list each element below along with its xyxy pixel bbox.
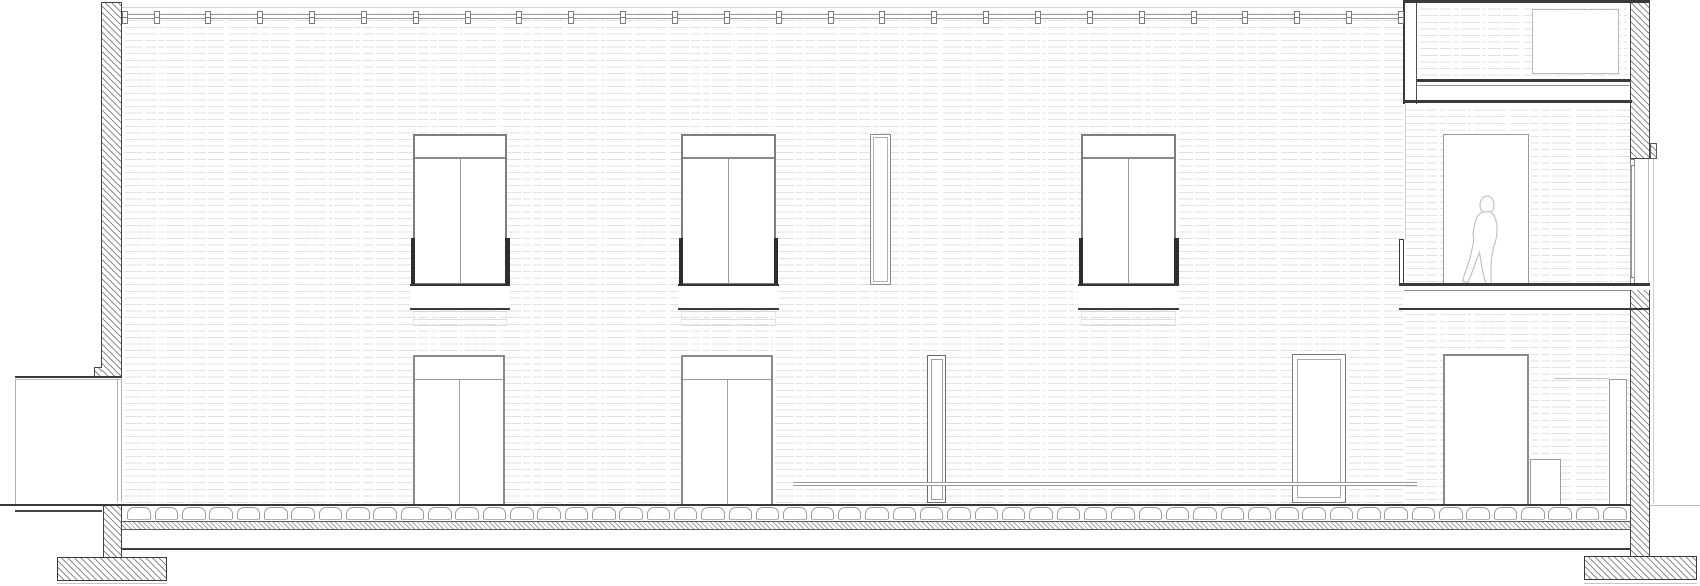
person-body: [1463, 211, 1498, 284]
cabinet-box: [1530, 459, 1561, 505]
wall-face-line-a: [117, 379, 118, 502]
floor-paver: [264, 507, 288, 520]
right-glazing-frame-top: [1630, 159, 1636, 166]
floor-paver: [1057, 507, 1081, 520]
floor-paver: [565, 507, 589, 520]
handrail-line: [793, 482, 1417, 487]
floor-paver: [401, 507, 425, 520]
terrace-parapet: [1399, 239, 1404, 286]
floor-paver: [756, 507, 780, 520]
window-mullion: [728, 159, 729, 284]
right-footing: [1584, 556, 1698, 580]
guardrail-post-right: [505, 238, 510, 285]
floor-paver: [975, 507, 999, 520]
floor-paver: [1166, 507, 1190, 520]
rail-clip: [828, 11, 834, 24]
rail-clip: [672, 11, 678, 24]
slit-window-inner-frame: [873, 137, 888, 282]
floor-paver: [592, 507, 616, 520]
floor-paver: [182, 507, 206, 520]
rail-clip: [620, 11, 626, 24]
sill-reflection: [413, 311, 507, 327]
floor-paver: [674, 507, 698, 520]
floor-paver: [428, 507, 452, 520]
roof-deck-bottom-line: [1403, 100, 1632, 103]
floor-paver: [647, 507, 671, 520]
floor-paver: [483, 507, 507, 520]
guardrail-post-left: [411, 238, 416, 285]
right-wall-ledge: [1650, 143, 1657, 159]
rail-clip: [1242, 11, 1248, 24]
floor-paver: [1330, 507, 1354, 520]
lower-door-right: [1443, 354, 1529, 505]
rail-clip: [1191, 11, 1197, 24]
left-wall-stem: [103, 506, 122, 557]
annex-canopy-line: [15, 376, 122, 379]
rail-clip: [309, 11, 315, 24]
floor-paver: [373, 507, 397, 520]
rail-clip: [465, 11, 471, 24]
floor-paver: [1439, 507, 1463, 520]
glazed-slot-inner-frame: [931, 359, 943, 500]
floor-paver: [783, 507, 807, 520]
rail-clip: [931, 11, 937, 24]
terrace-door: [1443, 134, 1529, 286]
floor-paver: [155, 507, 179, 520]
rail-clip: [154, 11, 160, 24]
floor-paver: [1412, 507, 1436, 520]
guardrail-post-right: [1174, 238, 1179, 285]
guardrail-post-right: [774, 238, 779, 285]
roof-top-line: [1403, 0, 1650, 3]
rail-clip: [568, 11, 574, 24]
right-glazing-mullion-a: [1630, 159, 1632, 284]
rail-clip: [122, 11, 128, 24]
wall-face-line-b: [121, 379, 122, 502]
rail-clip: [361, 11, 367, 24]
floor-paver: [1275, 507, 1299, 520]
terrace-slab-bottom-line: [1399, 308, 1650, 311]
floor-paver: [1302, 507, 1326, 520]
floor-paver: [346, 507, 370, 520]
rail-clip: [1294, 11, 1300, 24]
window-mullion: [1128, 159, 1129, 284]
annex-canopy-underline: [15, 379, 122, 380]
floor-paver: [455, 507, 479, 520]
floor-paver: [1111, 507, 1135, 520]
annex-underground-line: [15, 510, 102, 512]
rail-clip: [983, 11, 989, 24]
floor-paver: [865, 507, 889, 520]
floor-slab-band: [122, 530, 1631, 550]
left-footing: [57, 557, 168, 581]
shelf-line: [1555, 378, 1609, 379]
rail-clip: [776, 11, 782, 24]
floor-paver: [510, 507, 534, 520]
floor-paver: [838, 507, 862, 520]
upper-window-2: [681, 134, 776, 286]
floor-paver: [127, 507, 151, 520]
rail-clip: [1035, 11, 1041, 24]
door-panel: [1609, 379, 1627, 505]
floor-paver: [1193, 507, 1217, 520]
left-wall-cut: [101, 2, 122, 377]
rail-clip: [257, 11, 263, 24]
person-figure: [1460, 195, 1507, 285]
left-footing-baseline: [57, 583, 168, 584]
right-glazing-outer-line: [1648, 159, 1649, 284]
roof-deck-mid-line: [1417, 85, 1631, 87]
rail-clip: [1398, 11, 1404, 24]
balcony-slab-edge: [1078, 293, 1179, 310]
floor-paver: [1603, 507, 1627, 520]
rail-clip: [724, 11, 730, 24]
balcony-slab-edge: [678, 293, 779, 310]
right-footing-baseline: [1584, 583, 1698, 584]
floor-paver: [1576, 507, 1600, 520]
section-drawing: [0, 0, 1700, 586]
floor-paver: [1466, 507, 1490, 520]
floor-paver: [1494, 507, 1518, 520]
floor-paver: [291, 507, 315, 520]
right-wall-cut-top: [1630, 0, 1650, 159]
door-mullion: [727, 380, 728, 505]
rail-clip: [1346, 11, 1352, 24]
floor-paver: [920, 507, 944, 520]
right-exterior-face-line: [1653, 159, 1654, 504]
floor-paver: [1248, 507, 1272, 520]
floor-paver: [729, 507, 753, 520]
window-mullion: [460, 159, 461, 284]
ground-line: [0, 504, 1630, 507]
floor-paver: [1521, 507, 1545, 520]
right-wall-cut-bottom: [1630, 290, 1650, 556]
rail-clip: [879, 11, 885, 24]
glazed-slot-inner-frame: [1297, 359, 1341, 498]
roof-deck-top-line: [1417, 79, 1631, 82]
floor-paver: [893, 507, 917, 520]
floor-paver: [947, 507, 971, 520]
terrace-slab-top-line: [1399, 283, 1650, 286]
balcony-slab-edge: [410, 293, 510, 310]
rail-clip: [205, 11, 211, 24]
floor-paver: [811, 507, 835, 520]
annex-body: [15, 379, 102, 505]
terrace-slab-mid-line: [1404, 290, 1630, 292]
rail-clip: [413, 11, 419, 24]
rail-clip: [516, 11, 522, 24]
right-glazing-mullion-b: [1634, 159, 1635, 284]
floor-paver: [209, 507, 233, 520]
floor-paver: [1139, 507, 1163, 520]
floor-paver: [319, 507, 343, 520]
floor-paver: [1357, 507, 1381, 520]
terrace-corner-line: [1405, 104, 1406, 239]
floor-paver: [1029, 507, 1053, 520]
lower-door-2: [681, 355, 773, 505]
floor-paver: [1002, 507, 1026, 520]
floor-paver: [701, 507, 725, 520]
sill-reflection: [681, 311, 776, 327]
guardrail-post-left: [1079, 238, 1084, 285]
floor-paver: [1548, 507, 1572, 520]
floor-paver: [237, 507, 261, 520]
door-mullion: [459, 380, 460, 505]
floor-paver: [619, 507, 643, 520]
rail-clip: [1139, 11, 1145, 24]
floor-screed-band: [122, 521, 1631, 530]
exterior-ground-line-right: [1650, 505, 1700, 506]
lower-door-1: [413, 355, 505, 505]
curtain-rail-clips: [0, 0, 1700, 30]
sill-reflection: [1081, 311, 1176, 327]
upper-window-3: [1081, 134, 1176, 286]
floor-paver: [1084, 507, 1108, 520]
rail-clip: [1087, 11, 1093, 24]
floor-paver: [537, 507, 561, 520]
guardrail-post-left: [679, 238, 684, 285]
slit-window: [870, 134, 892, 286]
floor-paver: [1384, 507, 1408, 520]
upper-window-1: [413, 134, 507, 286]
floor-paver: [1221, 507, 1245, 520]
